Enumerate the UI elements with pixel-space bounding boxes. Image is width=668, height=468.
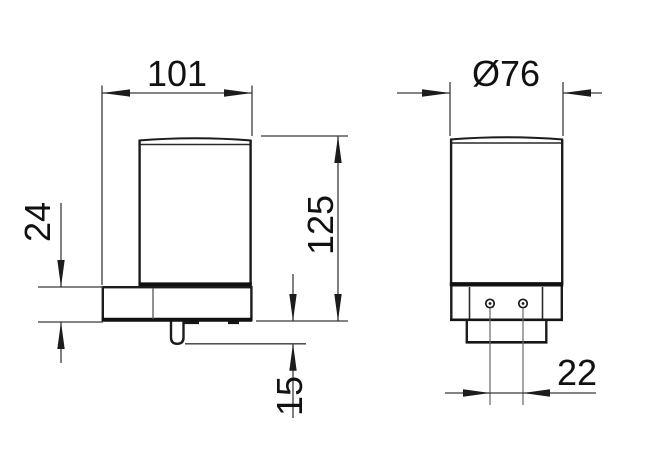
screw-hole-right-center	[522, 302, 525, 305]
arrowhead-up-icon	[334, 136, 341, 163]
dim-spout-15: 15	[185, 274, 310, 418]
arrowhead-left-icon	[563, 89, 591, 96]
pump-block-front	[466, 320, 548, 342]
arrowhead-up-icon	[289, 344, 296, 371]
container-rim-top	[139, 138, 252, 140]
arrowhead-down-icon	[57, 260, 64, 287]
screw-hole-left-center	[489, 302, 492, 305]
arrowhead-left-icon	[523, 389, 550, 396]
side-view: 101 24	[17, 53, 348, 418]
arrowhead-left-icon	[102, 89, 130, 96]
arrowhead-right-icon	[422, 89, 450, 96]
dim-height-125: 125	[256, 136, 348, 321]
drawing-canvas: 101 24	[0, 0, 668, 468]
arrowhead-down-icon	[334, 294, 341, 321]
dim-label-height: 125	[300, 195, 341, 255]
dim-label-width: 101	[147, 53, 207, 94]
mount-plate-side	[102, 287, 252, 323]
technical-drawing: 101 24	[0, 0, 668, 468]
arrowhead-up-icon	[57, 322, 64, 349]
dim-width-101: 101	[102, 53, 252, 285]
dim-hole-spacing-22: 22	[445, 352, 597, 397]
container-body-side	[139, 138, 252, 285]
arrowhead-right-icon	[224, 89, 252, 96]
dim-label-diameter: Ø76	[472, 53, 540, 94]
arrowhead-down-icon	[289, 294, 296, 321]
dim-plate-24: 24	[17, 202, 103, 363]
container-rim-top	[450, 137, 563, 139]
dim-label-plate-height: 24	[17, 202, 58, 242]
dim-label-spout: 15	[269, 376, 310, 416]
mount-bracket-front	[450, 287, 563, 321]
arrowhead-right-icon	[463, 389, 490, 396]
front-view: Ø76	[397, 53, 602, 405]
dim-diameter-76: Ø76	[397, 53, 602, 136]
dim-label-hole-spacing: 22	[557, 352, 597, 393]
container-body-front	[450, 137, 564, 284]
mount-plate-outline	[103, 287, 252, 320]
pump-spout	[171, 322, 184, 344]
